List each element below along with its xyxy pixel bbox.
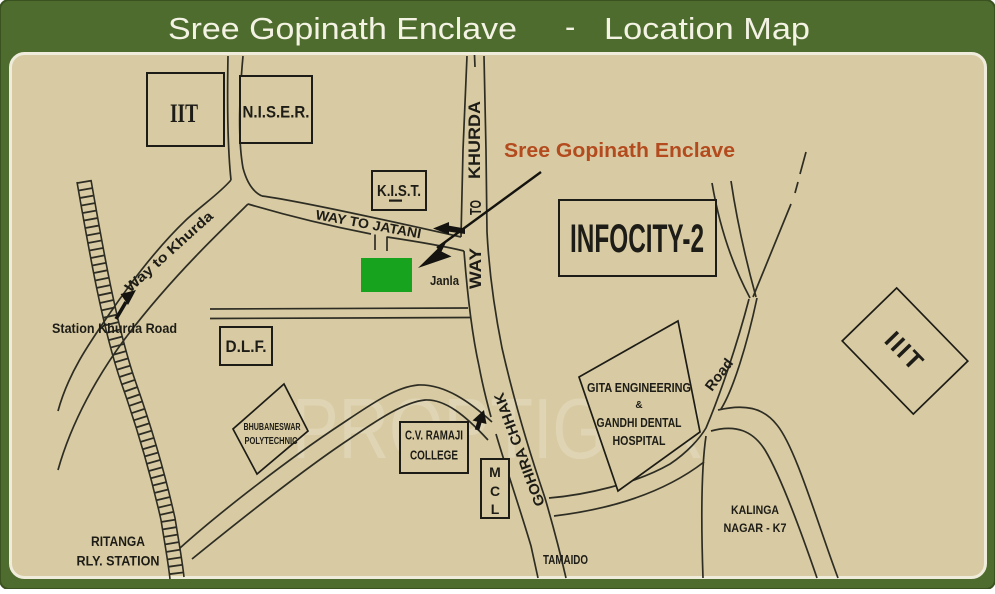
svg-text:Janla: Janla (430, 273, 460, 288)
svg-text:GANDHI DENTAL: GANDHI DENTAL (597, 415, 682, 430)
svg-text:C: C (490, 483, 500, 499)
svg-text:Sree Gopinath Enclave: Sree Gopinath Enclave (168, 11, 517, 46)
svg-text:TAMAIDO: TAMAIDO (543, 553, 588, 567)
svg-text:BHUBANESWAR: BHUBANESWAR (244, 422, 302, 433)
svg-text:NAGAR - K7: NAGAR - K7 (724, 521, 787, 535)
svg-text:HOSPITAL: HOSPITAL (613, 433, 666, 448)
svg-text:WAY: WAY (466, 247, 485, 289)
svg-text:INFOCITY-2: INFOCITY-2 (570, 217, 704, 261)
svg-text:L: L (491, 501, 500, 517)
svg-text:COLLEGE: COLLEGE (410, 448, 458, 463)
svg-text:Sree Gopinath Enclave: Sree Gopinath Enclave (504, 139, 735, 162)
svg-text:K.I.S.T.: K.I.S.T. (377, 183, 421, 200)
svg-text:C.V. RAMAJI: C.V. RAMAJI (405, 428, 463, 443)
svg-text:GITA ENGINEERING: GITA ENGINEERING (587, 380, 691, 395)
svg-text:&: & (635, 400, 642, 411)
svg-text:Station Khurda Road: Station Khurda Road (52, 321, 177, 336)
svg-text:POLYTECHNIC: POLYTECHNIC (245, 436, 298, 447)
svg-text:N.I.S.E.R.: N.I.S.E.R. (243, 103, 310, 122)
svg-text:TO: TO (468, 200, 485, 215)
svg-text:D.L.F.: D.L.F. (226, 337, 267, 356)
svg-text:Location Map: Location Map (604, 11, 810, 46)
svg-text:IIT: IIT (170, 99, 198, 128)
svg-text:KHURDA: KHURDA (465, 101, 484, 179)
svg-text:RLY. STATION: RLY. STATION (77, 554, 160, 569)
svg-text:-: - (565, 9, 575, 44)
svg-text:KALINGA: KALINGA (731, 503, 779, 517)
svg-text:M: M (489, 464, 501, 480)
svg-text:RITANGA: RITANGA (91, 534, 145, 549)
